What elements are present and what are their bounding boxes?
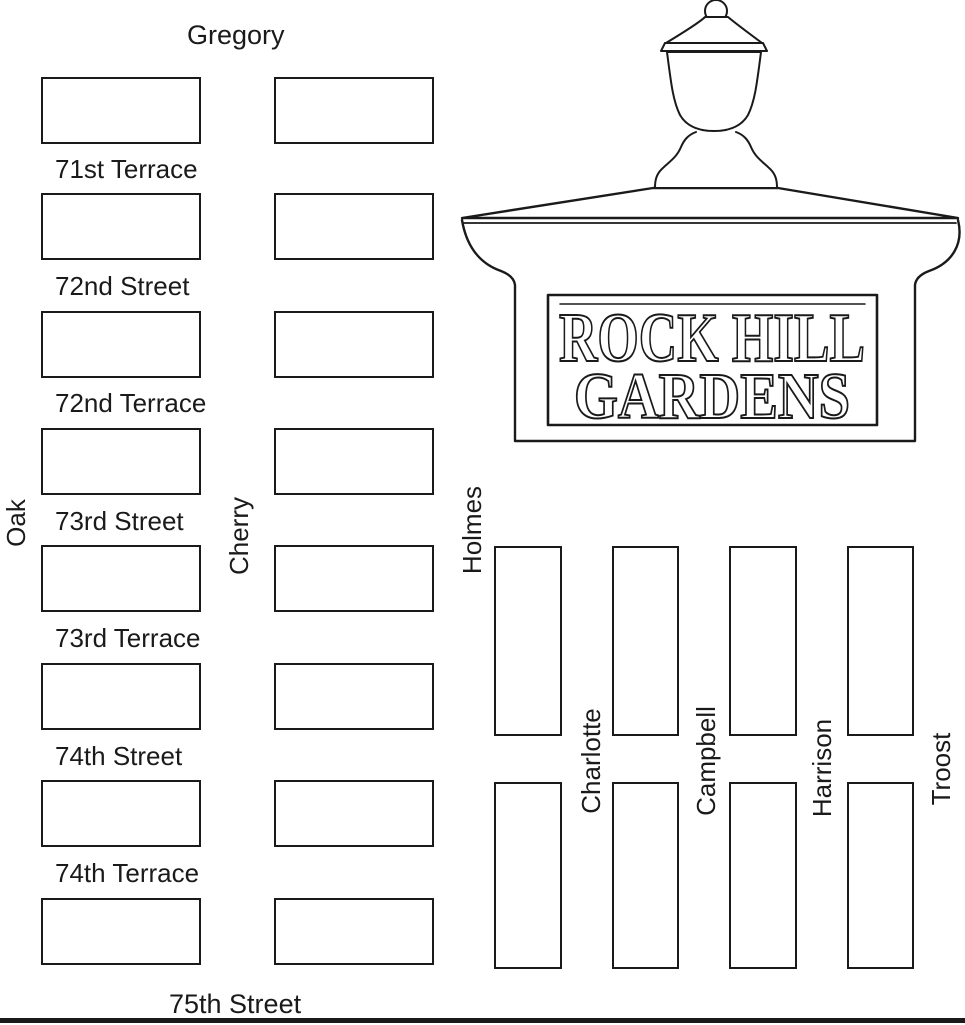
city-block xyxy=(274,663,434,730)
monument-finial-rim xyxy=(661,43,767,51)
rockhill-gardens-monument: ROCK HILL GARDENS xyxy=(0,0,965,460)
city-block xyxy=(274,898,434,965)
monument-finial-lid xyxy=(666,17,762,43)
monument-finial-urn xyxy=(667,52,761,131)
city-block xyxy=(729,546,797,736)
city-block xyxy=(847,782,914,969)
street-label-troost: Troost xyxy=(927,694,955,844)
sign-text-line2: GARDENS xyxy=(574,360,850,433)
street-label-73rd-terrace: 73rd Terrace xyxy=(55,624,201,654)
street-label-75th-street: 75th Street xyxy=(169,989,301,1020)
street-label-cherry: Cherry xyxy=(225,461,253,611)
city-block xyxy=(494,782,562,969)
city-block xyxy=(612,782,679,969)
city-block xyxy=(274,545,434,612)
monument-finial-base xyxy=(655,132,777,188)
street-label-harrison: Harrison xyxy=(808,693,836,843)
city-block xyxy=(494,546,562,736)
bottom-street-line xyxy=(0,1018,965,1023)
city-block xyxy=(612,546,679,736)
rockhill-gardens-neighborhood-map: Gregory 71st Terrace 72nd Street 72nd Te… xyxy=(0,0,965,1025)
city-block xyxy=(41,898,201,965)
street-label-73rd-street: 73rd Street xyxy=(55,507,184,537)
city-block xyxy=(41,663,201,730)
city-block xyxy=(729,782,797,969)
street-label-74th-street: 74th Street xyxy=(55,742,182,772)
city-block xyxy=(847,546,914,736)
street-label-campbell: Campbell xyxy=(692,686,720,836)
city-block xyxy=(274,780,434,847)
city-block xyxy=(41,780,201,847)
city-block xyxy=(41,545,201,612)
monument-roof xyxy=(462,188,958,218)
street-label-oak: Oak xyxy=(2,448,30,598)
street-label-charlotte: Charlotte xyxy=(577,686,605,836)
street-label-holmes: Holmes xyxy=(458,455,486,605)
street-label-74th-terrace: 74th Terrace xyxy=(55,859,199,889)
